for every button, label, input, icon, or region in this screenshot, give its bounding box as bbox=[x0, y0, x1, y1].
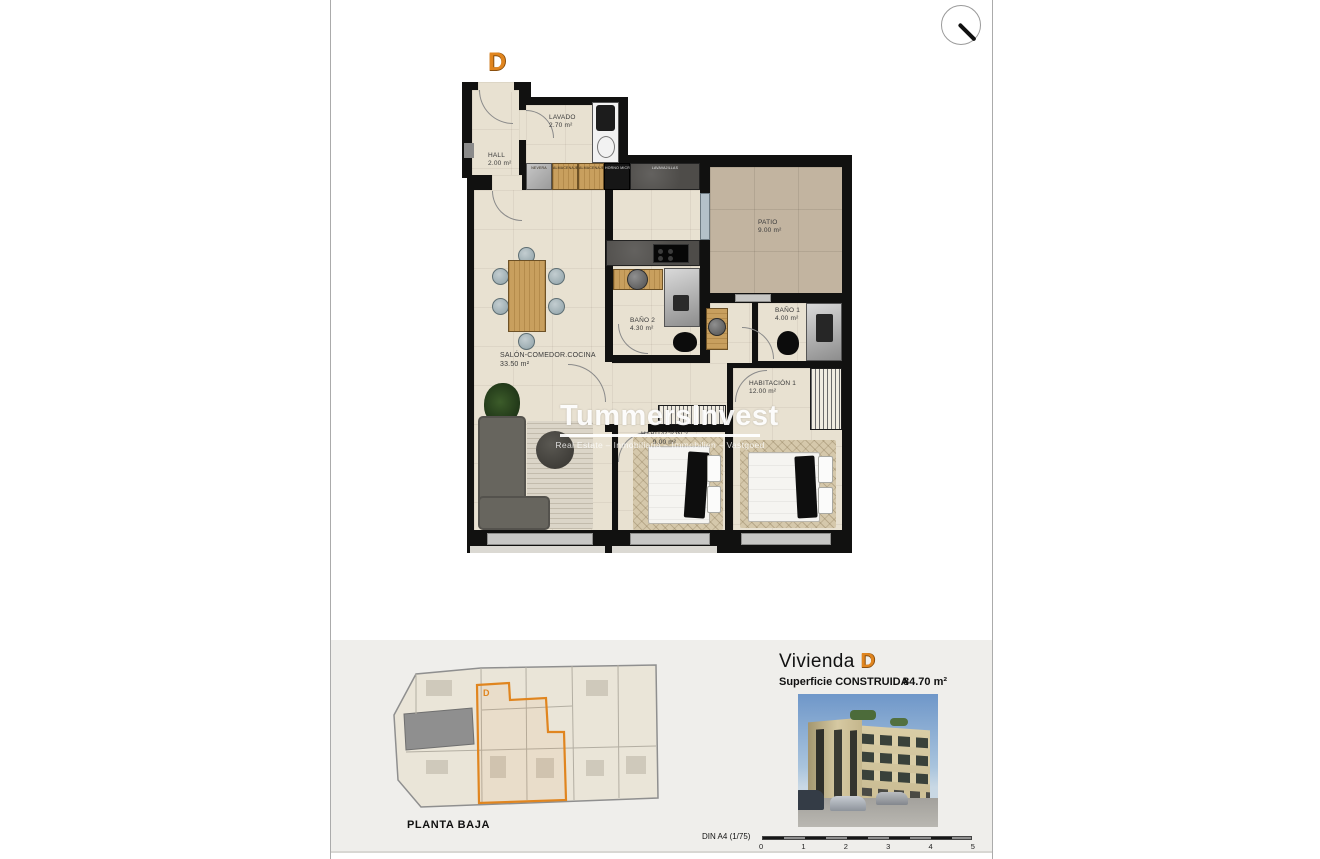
dishwasher-counter: LAVAVAJILLAS bbox=[630, 163, 700, 190]
photo-balcony-row bbox=[862, 752, 930, 767]
sofa-chaise bbox=[478, 496, 550, 530]
bano2-shower-tray bbox=[673, 295, 689, 311]
room-area: 4.00 m² bbox=[775, 315, 798, 322]
unit-letter-label: D bbox=[488, 48, 506, 77]
room-label-hall: HALL2.00 m² bbox=[488, 152, 511, 169]
dining-chair bbox=[548, 268, 565, 285]
washer-dryer-stack bbox=[592, 102, 619, 163]
unit-title: Vivienda D bbox=[779, 650, 875, 673]
surface-label: Superficie CONSTRUIDA bbox=[779, 676, 909, 688]
hab2-pillow bbox=[707, 455, 721, 482]
scale-tick: 2 bbox=[844, 842, 848, 851]
room-label-hab1: HABITACIÓN 112.00 m² bbox=[749, 380, 796, 397]
hab1-pillow bbox=[818, 456, 833, 483]
room-label-bano1: BAÑO 14.00 m² bbox=[775, 307, 800, 324]
site-plan-stairwell bbox=[404, 708, 474, 750]
room-label-patio: PATIO9.00 m² bbox=[758, 219, 781, 236]
surface-value: 84.70 m² bbox=[903, 676, 947, 688]
room-name: LAVADO bbox=[549, 114, 576, 121]
room-name: BAÑO 2 bbox=[630, 317, 655, 324]
scale-bar bbox=[762, 836, 972, 840]
burner bbox=[658, 256, 663, 261]
cabinet-2: ALMACENAJE bbox=[578, 163, 604, 190]
room-name: SALÓN-COMEDOR.COCINA bbox=[500, 352, 596, 359]
salon-window bbox=[487, 533, 593, 545]
footer-panel: D PLANTA BAJA Vivienda D Superficie CONS… bbox=[331, 640, 992, 853]
hab2-window bbox=[630, 533, 710, 545]
site-plan-caption: PLANTA BAJA bbox=[407, 819, 490, 831]
page: D NEVERA ALMACENAJE bbox=[0, 0, 1320, 859]
photo-roof-plants bbox=[850, 710, 876, 720]
scale-tick: 4 bbox=[928, 842, 932, 851]
hab2-pillow bbox=[707, 486, 721, 513]
photo-car bbox=[830, 796, 866, 811]
room-area: 9.00 m² bbox=[758, 227, 781, 234]
unit-title-text: Vivienda bbox=[779, 651, 855, 672]
room-name: HABITACIÓN 1 bbox=[749, 380, 796, 387]
hab1-window bbox=[741, 533, 831, 545]
watermark: TummersInvest Real Estate – Inmobiliaria… bbox=[560, 400, 760, 450]
bano1-toilet bbox=[777, 331, 799, 355]
hall-lavado-door-gap bbox=[519, 110, 526, 140]
bano2-toilet bbox=[673, 332, 697, 352]
hab1-pillow bbox=[818, 487, 833, 514]
watermark-subtitle: Real Estate – Inmobiliaria – Immobilien … bbox=[535, 440, 785, 450]
bano1-shower-column bbox=[816, 314, 833, 342]
room-label-bano2: BAÑO 24.30 m² bbox=[630, 317, 655, 334]
cabinet-1-label: ALMACENAJE bbox=[553, 164, 577, 170]
dining-chair bbox=[492, 298, 509, 315]
building-photo bbox=[798, 694, 938, 827]
photo-window-band bbox=[834, 729, 842, 800]
induction-hob bbox=[653, 244, 689, 263]
watermark-title: TummersInvest bbox=[560, 400, 760, 437]
scale-tick: 3 bbox=[886, 842, 890, 851]
washer-drum bbox=[596, 105, 615, 131]
burner bbox=[658, 249, 663, 254]
scale-tick: 5 bbox=[971, 842, 975, 851]
photo-balcony-row bbox=[862, 734, 930, 749]
room-label-salon: SALÓN-COMEDOR.COCINA33.50 m² bbox=[500, 351, 596, 369]
dishwasher-label: LAVAVAJILLAS bbox=[631, 164, 699, 170]
photo-window-band bbox=[850, 730, 857, 797]
room-area: 2.70 m² bbox=[549, 122, 572, 129]
photo-car bbox=[798, 790, 824, 810]
burner bbox=[668, 256, 673, 261]
dining-chair bbox=[492, 268, 509, 285]
terrace-step bbox=[612, 546, 717, 553]
kitchen-island bbox=[606, 240, 700, 266]
oven-micro-label: HORNO MICRO bbox=[605, 164, 629, 170]
site-plan: D bbox=[386, 660, 664, 814]
room-area: 33.50 m² bbox=[500, 361, 529, 368]
entrance-doorstep bbox=[464, 143, 474, 158]
cabinet-2-label: ALMACENAJE bbox=[579, 164, 603, 170]
kitchen-floor bbox=[612, 190, 700, 240]
patio-sliding-door bbox=[700, 193, 710, 240]
fridge: NEVERA bbox=[526, 163, 552, 190]
terrace-step bbox=[470, 546, 605, 553]
patio-window bbox=[735, 294, 771, 302]
oven-micro: HORNO MICRO bbox=[604, 163, 630, 190]
burner bbox=[668, 249, 673, 254]
room-area: 2.00 m² bbox=[488, 160, 511, 167]
bano2-basin bbox=[627, 269, 648, 290]
photo-roof-plants bbox=[890, 718, 908, 726]
room-area: 4.30 m² bbox=[630, 325, 653, 332]
dining-chair bbox=[548, 298, 565, 315]
hab1-bed-throw bbox=[794, 456, 817, 519]
hall-salon-door-gap bbox=[492, 175, 522, 191]
room-name: PATIO bbox=[758, 219, 778, 226]
wardrobe-hab1 bbox=[810, 368, 842, 430]
room-name: HALL bbox=[488, 152, 505, 159]
dryer-drum bbox=[597, 136, 615, 158]
room-label-lavado: LAVADO2.70 m² bbox=[549, 114, 576, 131]
site-plan-unit-letter: D bbox=[483, 688, 490, 698]
unit-title-letter: D bbox=[860, 650, 875, 672]
scale-ticks: 0 1 2 3 4 5 bbox=[759, 842, 975, 851]
scale-tick: 1 bbox=[801, 842, 805, 851]
fridge-label: NEVERA bbox=[527, 164, 551, 170]
photo-balcony-row bbox=[862, 770, 930, 785]
room-name: BAÑO 1 bbox=[775, 307, 800, 314]
dining-table bbox=[508, 260, 546, 332]
corridor-basin bbox=[708, 318, 726, 336]
room-area: 12.00 m² bbox=[749, 388, 776, 395]
photo-car bbox=[876, 792, 908, 805]
scale-label: DIN A4 (1/75) bbox=[702, 832, 750, 841]
wall-salon-kitchen bbox=[605, 190, 613, 362]
cabinet-1: ALMACENAJE bbox=[552, 163, 578, 190]
dining-chair bbox=[518, 333, 535, 350]
scale-tick: 0 bbox=[759, 842, 763, 851]
